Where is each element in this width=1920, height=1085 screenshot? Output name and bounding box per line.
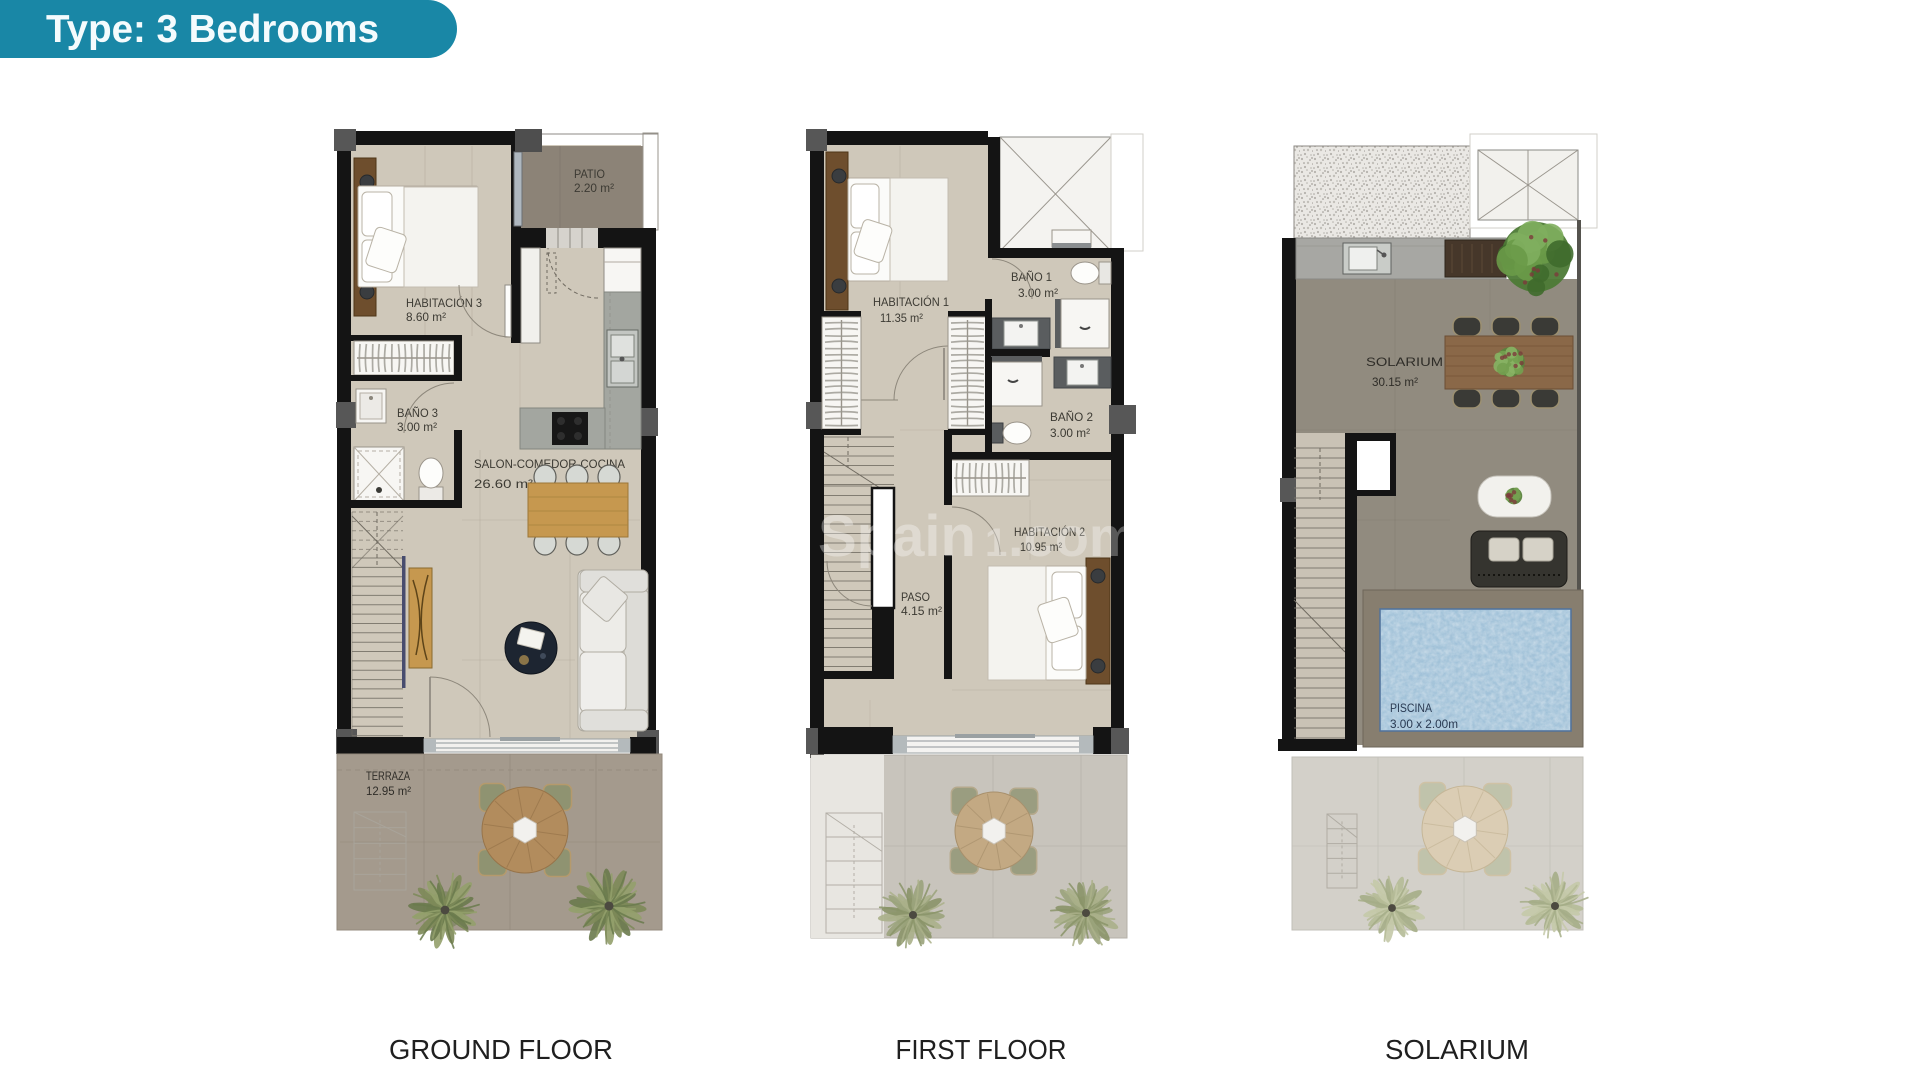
svg-text:SOLARIUM: SOLARIUM bbox=[1366, 355, 1443, 369]
svg-text:8.60 m²: 8.60 m² bbox=[406, 310, 446, 324]
svg-text:3.00 m²: 3.00 m² bbox=[1050, 426, 1090, 440]
svg-text:BAÑO 1: BAÑO 1 bbox=[1011, 270, 1052, 284]
svg-text:.com: .com bbox=[1008, 505, 1139, 568]
svg-text:3.00 m²: 3.00 m² bbox=[397, 420, 437, 434]
svg-text:BAÑO 2: BAÑO 2 bbox=[1050, 410, 1093, 424]
svg-text:HABITACIÓN 3: HABITACIÓN 3 bbox=[406, 295, 482, 310]
svg-text:Spain: Spain bbox=[818, 504, 976, 569]
svg-text:26.60 m²: 26.60 m² bbox=[474, 477, 533, 491]
svg-text:Type: 3 Bedrooms: Type: 3 Bedrooms bbox=[46, 8, 379, 51]
svg-text:1: 1 bbox=[985, 521, 1007, 565]
svg-text:PISCINA: PISCINA bbox=[1390, 701, 1432, 715]
svg-text:TERRAZA: TERRAZA bbox=[366, 769, 410, 783]
svg-text:BAÑO 3: BAÑO 3 bbox=[397, 406, 438, 420]
svg-text:2.20 m²: 2.20 m² bbox=[574, 181, 614, 195]
svg-text:PATIO: PATIO bbox=[574, 167, 605, 181]
svg-text:30.15 m²: 30.15 m² bbox=[1372, 375, 1418, 389]
svg-text:12.95 m²: 12.95 m² bbox=[366, 784, 411, 798]
svg-text:4.15 m²: 4.15 m² bbox=[901, 604, 942, 618]
svg-text:FIRST FLOOR: FIRST FLOOR bbox=[896, 1034, 1067, 1065]
svg-text:3.00 m²: 3.00 m² bbox=[1018, 286, 1058, 300]
svg-text:PASO: PASO bbox=[901, 590, 930, 604]
svg-text:3.00 x 2.00m: 3.00 x 2.00m bbox=[1390, 717, 1458, 731]
svg-text:SOLARIUM: SOLARIUM bbox=[1385, 1034, 1529, 1065]
svg-text:11.35 m²: 11.35 m² bbox=[880, 311, 923, 325]
svg-text:HABITACIÓN 1: HABITACIÓN 1 bbox=[873, 294, 949, 309]
svg-text:GROUND FLOOR: GROUND FLOOR bbox=[389, 1034, 613, 1065]
